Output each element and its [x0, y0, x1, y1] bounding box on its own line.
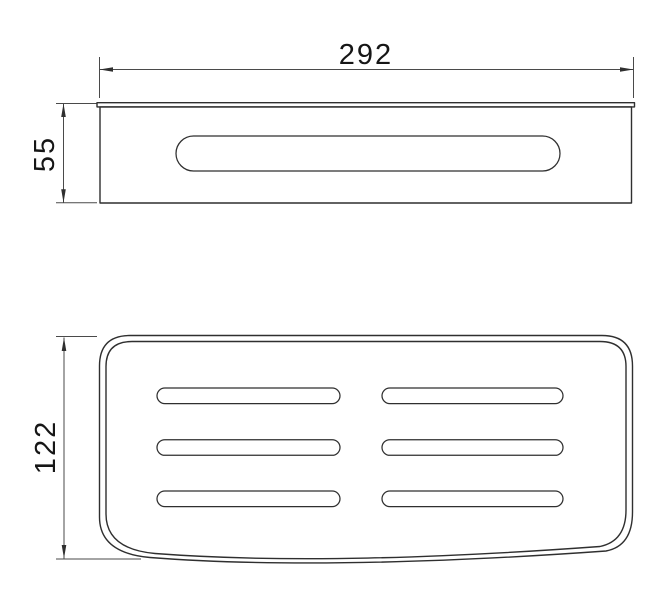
drain-slot [382, 440, 563, 456]
plan-depth-dimension: 122 [30, 337, 141, 560]
front-width-dimension: 292 [100, 39, 634, 98]
tray-inner-outline [106, 342, 626, 559]
technical-drawing-sheet: 292 55 [0, 0, 670, 600]
width-dimension-label: 292 [339, 39, 393, 71]
drain-slot [157, 491, 340, 507]
arrowhead-down-icon [61, 189, 66, 203]
drain-slot [157, 440, 340, 456]
drain-slots [157, 388, 563, 507]
arrowhead-right-icon [620, 67, 634, 72]
drain-slot [157, 388, 340, 404]
depth-dimension-label: 122 [30, 420, 62, 474]
tray-outer-outline [100, 336, 633, 564]
front-height-dimension: 55 [29, 104, 97, 203]
arrowhead-down-icon [62, 545, 67, 559]
front-slot [176, 136, 560, 171]
arrowhead-up-icon [62, 338, 67, 352]
shelf-body-outline [100, 107, 632, 203]
arrowhead-up-icon [61, 104, 66, 118]
drawing-svg: 292 55 [0, 0, 670, 600]
height-dimension-label: 55 [29, 136, 61, 172]
drain-slot [382, 388, 563, 404]
front-view: 292 55 [29, 39, 634, 203]
drain-slot [382, 491, 563, 507]
plan-view: 122 [30, 336, 632, 564]
arrowhead-left-icon [100, 67, 114, 72]
